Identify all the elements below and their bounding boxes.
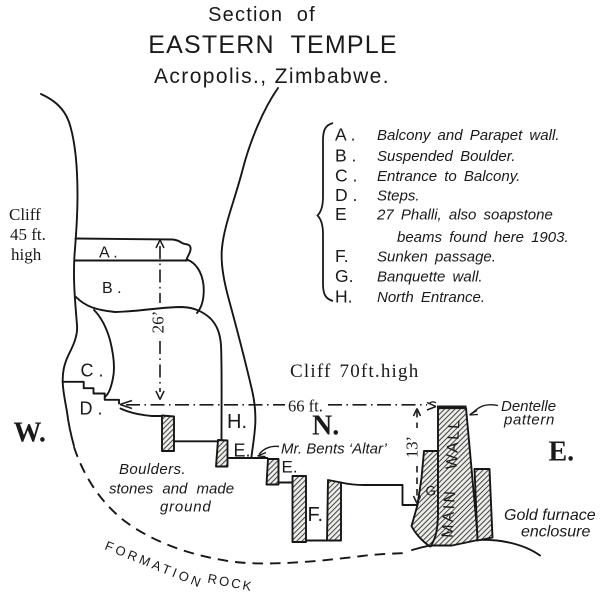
svg-text:Boulders.: Boulders. bbox=[119, 461, 186, 478]
svg-text:Suspended Boulder.: Suspended Boulder. bbox=[377, 148, 515, 165]
svg-text:Cliff 70ft.high: Cliff 70ft.high bbox=[290, 361, 419, 382]
svg-text:Sunken passage.: Sunken passage. bbox=[377, 249, 496, 266]
svg-text:C .: C . bbox=[81, 361, 104, 381]
svg-text:W.: W. bbox=[14, 418, 46, 449]
svg-text:Gold furnace: Gold furnace bbox=[504, 507, 596, 524]
svg-text:E.: E. bbox=[549, 437, 575, 468]
svg-text:ground: ground bbox=[160, 499, 212, 516]
svg-text:26’: 26’ bbox=[149, 311, 168, 334]
svg-text:G.: G. bbox=[335, 266, 353, 286]
svg-text:F.: F. bbox=[308, 504, 324, 526]
svg-text:Cliff: Cliff bbox=[9, 205, 41, 224]
svg-text:B .: B . bbox=[335, 146, 356, 166]
svg-text:G: G bbox=[426, 484, 437, 499]
svg-text:Section of: Section of bbox=[208, 4, 316, 26]
svg-text:D .: D . bbox=[335, 185, 357, 205]
svg-text:D .: D . bbox=[80, 399, 103, 419]
svg-text:Acropolis., Zimbabwe.: Acropolis., Zimbabwe. bbox=[154, 65, 390, 88]
svg-text:Mr. Bents ‘Altar’: Mr. Bents ‘Altar’ bbox=[281, 441, 388, 458]
svg-text:high: high bbox=[11, 245, 42, 264]
svg-text:E.: E. bbox=[234, 441, 251, 461]
svg-text:beams found here 1903.: beams found here 1903. bbox=[397, 229, 569, 246]
svg-text:H.: H. bbox=[227, 411, 247, 433]
svg-text:N.: N. bbox=[312, 411, 339, 442]
svg-text:Balcony and Parapet wall.: Balcony and Parapet wall. bbox=[377, 127, 559, 144]
svg-text:enclosure: enclosure bbox=[521, 524, 590, 541]
svg-text:Entrance to Balcony.: Entrance to Balcony. bbox=[377, 168, 520, 185]
svg-text:Banquette wall.: Banquette wall. bbox=[377, 269, 483, 286]
svg-text:45 ft.: 45 ft. bbox=[10, 225, 46, 244]
svg-text:13’: 13’ bbox=[403, 436, 422, 458]
svg-text:27 Phalli, also soapstone: 27 Phalli, also soapstone bbox=[376, 207, 553, 224]
svg-text:Steps.: Steps. bbox=[377, 188, 420, 205]
svg-text:A .: A . bbox=[335, 125, 355, 145]
svg-text:North Entrance.: North Entrance. bbox=[377, 289, 485, 306]
svg-text:pattern: pattern bbox=[503, 412, 555, 429]
svg-text:E: E bbox=[335, 204, 347, 224]
svg-text:B .: B . bbox=[102, 280, 122, 297]
svg-text:E.: E. bbox=[282, 458, 298, 477]
svg-text:H.: H. bbox=[335, 287, 353, 307]
svg-text:stones and made: stones and made bbox=[109, 481, 234, 498]
svg-text:EASTERN TEMPLE: EASTERN TEMPLE bbox=[148, 31, 397, 59]
svg-text:C .: C . bbox=[335, 166, 357, 186]
svg-text:A .: A . bbox=[99, 245, 118, 262]
svg-text:F.: F. bbox=[335, 246, 349, 266]
